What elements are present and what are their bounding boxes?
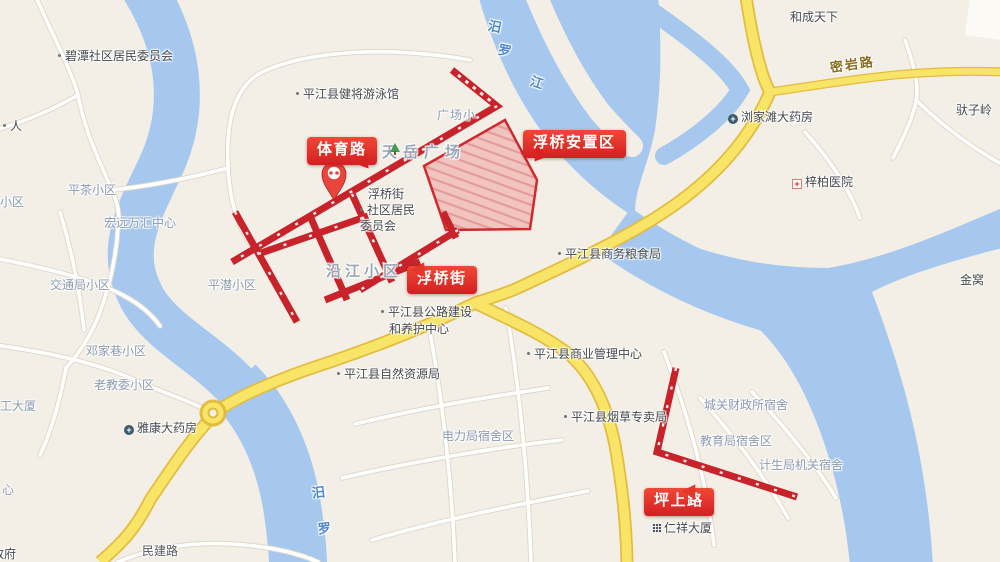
- callout-tiyu-road-text: 体育路: [317, 142, 367, 158]
- map-svg: [0, 0, 1000, 562]
- callout-fuqiao-zone-text: 浮桥安置区: [533, 135, 616, 151]
- callout-tiyu-road: 体育路: [307, 137, 377, 165]
- map-canvas[interactable]: 碧潭社区居民委员会平江县健将游泳馆和成天下驮子岭+浏家滩大药房+梓柏医院金窝平江…: [0, 0, 1000, 562]
- callout-fuqiao-street: 浮桥街: [407, 266, 477, 294]
- callout-pingshang-road: 坪上路: [644, 488, 714, 516]
- callout-fuqiao-zone: 浮桥安置区: [523, 130, 626, 158]
